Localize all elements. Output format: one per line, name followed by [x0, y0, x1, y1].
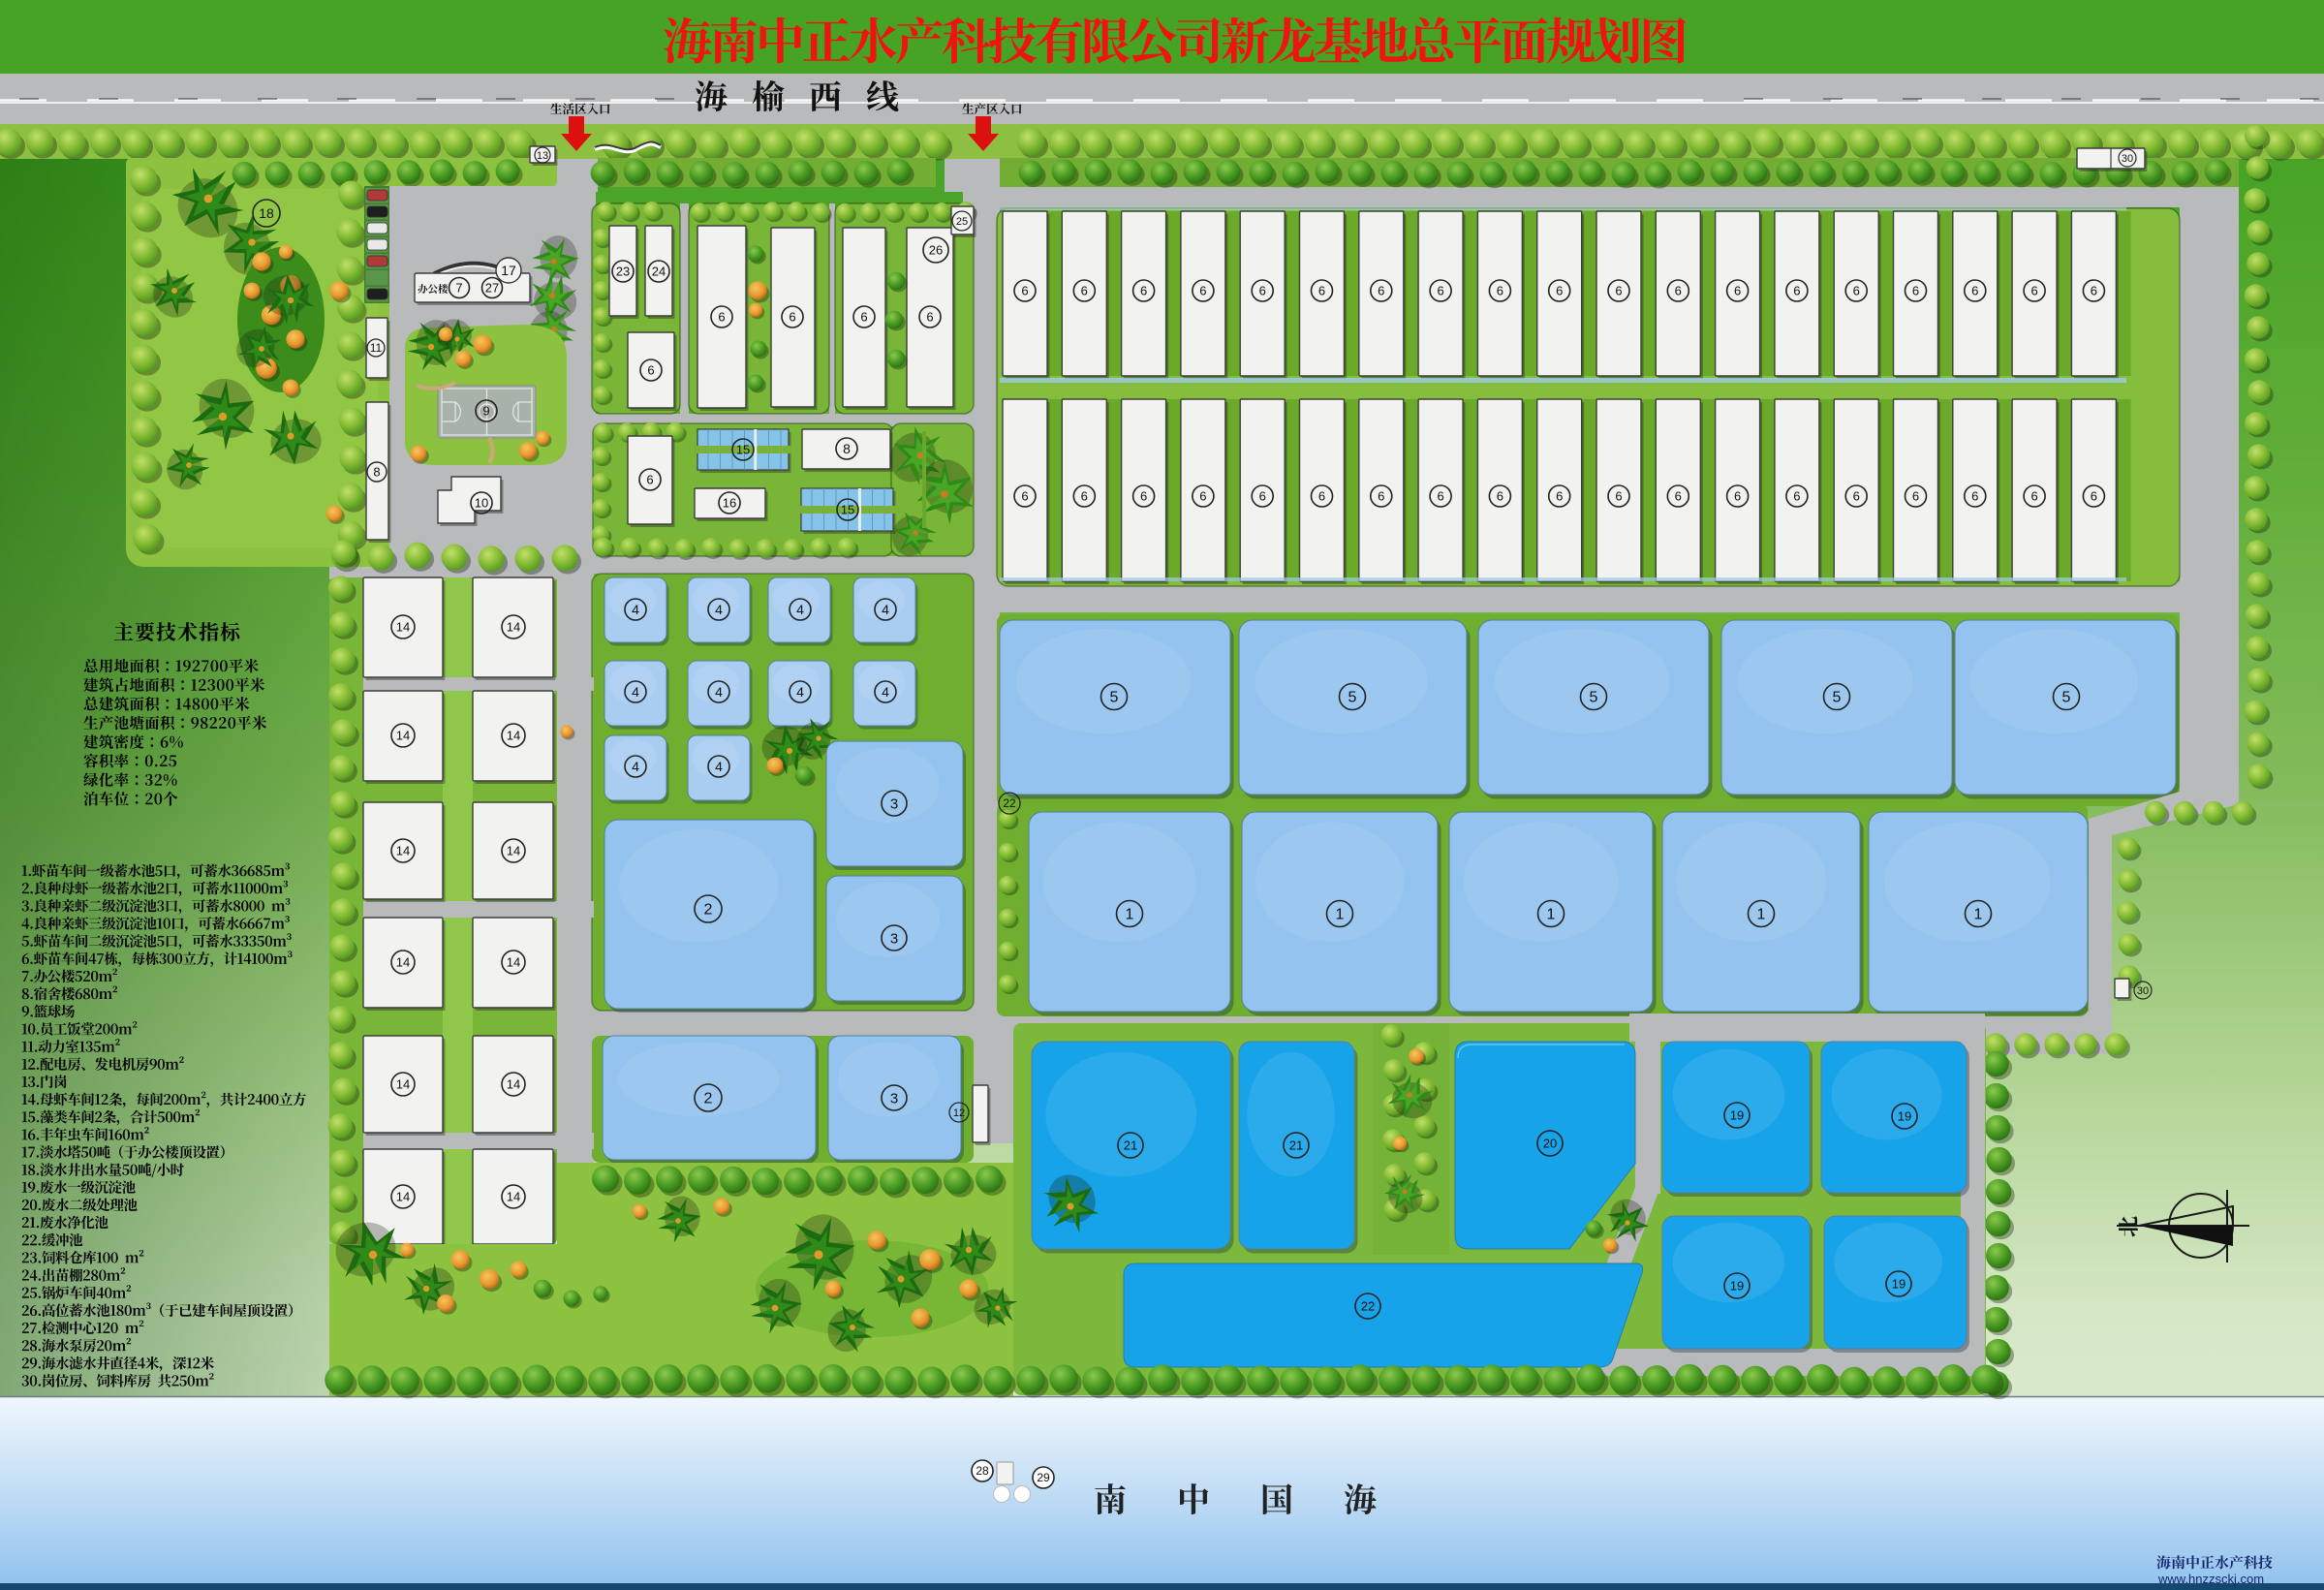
- svg-text:5: 5: [2062, 690, 2071, 706]
- svg-text:6: 6: [2091, 284, 2097, 298]
- svg-text:19: 19: [1892, 1277, 1906, 1292]
- svg-text:21: 21: [1124, 1138, 1137, 1153]
- svg-text:6: 6: [1021, 489, 1028, 504]
- svg-text:6: 6: [2030, 489, 2037, 504]
- svg-text:6: 6: [1199, 489, 1206, 504]
- svg-text:5: 5: [1833, 690, 1842, 706]
- svg-text:18: 18: [259, 205, 274, 221]
- svg-text:4: 4: [796, 684, 804, 700]
- svg-text:6: 6: [718, 310, 725, 325]
- svg-text:2: 2: [704, 1091, 713, 1107]
- svg-text:12: 12: [953, 1107, 965, 1119]
- svg-text:16: 16: [723, 496, 736, 511]
- svg-text:14: 14: [507, 1190, 520, 1204]
- svg-text:24: 24: [652, 265, 666, 279]
- svg-text:6: 6: [1556, 284, 1563, 298]
- svg-text:13: 13: [537, 150, 548, 162]
- svg-text:5: 5: [1348, 690, 1357, 706]
- svg-text:15: 15: [841, 503, 854, 517]
- svg-text:14: 14: [396, 1190, 410, 1204]
- svg-text:6: 6: [1259, 284, 1266, 298]
- svg-text:17: 17: [501, 263, 516, 278]
- svg-text:6: 6: [1556, 489, 1563, 504]
- svg-text:14: 14: [396, 955, 410, 970]
- svg-text:14: 14: [396, 729, 410, 743]
- svg-text:6: 6: [1318, 489, 1325, 504]
- svg-text:6: 6: [1497, 489, 1503, 504]
- svg-text:4: 4: [715, 684, 723, 700]
- svg-text:19: 19: [1730, 1279, 1744, 1294]
- svg-text:4: 4: [882, 684, 889, 700]
- svg-text:1: 1: [1336, 907, 1345, 923]
- svg-text:6: 6: [860, 310, 867, 325]
- svg-text:3: 3: [890, 795, 898, 812]
- svg-text:30: 30: [2122, 153, 2133, 165]
- svg-text:6: 6: [1734, 284, 1741, 298]
- svg-text:25: 25: [956, 216, 968, 228]
- svg-text:4: 4: [715, 602, 723, 617]
- svg-text:14: 14: [396, 844, 410, 858]
- svg-text:14: 14: [507, 1077, 520, 1092]
- svg-text:3: 3: [890, 1090, 898, 1107]
- svg-text:2: 2: [704, 902, 713, 919]
- svg-text:6: 6: [926, 310, 933, 325]
- svg-text:26: 26: [929, 243, 943, 258]
- svg-text:6: 6: [1318, 284, 1325, 298]
- svg-text:6: 6: [2030, 284, 2037, 298]
- svg-text:28: 28: [976, 1464, 989, 1478]
- svg-text:6: 6: [789, 310, 795, 325]
- svg-text:1: 1: [1757, 907, 1766, 923]
- svg-text:22: 22: [1361, 1299, 1375, 1314]
- svg-text:6: 6: [1081, 284, 1088, 298]
- svg-text:27: 27: [485, 281, 499, 296]
- svg-text:10: 10: [475, 496, 488, 511]
- svg-text:5: 5: [1590, 690, 1598, 706]
- svg-text:1: 1: [1547, 907, 1556, 923]
- svg-text:14: 14: [507, 844, 520, 858]
- svg-text:6: 6: [1497, 284, 1503, 298]
- svg-text:14: 14: [507, 620, 520, 635]
- svg-text:6: 6: [1199, 284, 1206, 298]
- svg-text:6: 6: [1140, 489, 1147, 504]
- svg-text:4: 4: [632, 602, 639, 617]
- svg-text:6: 6: [1437, 284, 1443, 298]
- svg-text:4: 4: [715, 759, 723, 774]
- svg-text:20: 20: [1543, 1137, 1557, 1151]
- svg-text:6: 6: [1912, 284, 1919, 298]
- svg-text:6: 6: [1912, 489, 1919, 504]
- svg-text:30: 30: [2137, 985, 2149, 997]
- svg-text:14: 14: [396, 1077, 410, 1092]
- svg-text:29: 29: [1037, 1471, 1050, 1484]
- svg-text:www.hnzzsckj.com: www.hnzzsckj.com: [2157, 1572, 2264, 1586]
- svg-text:4: 4: [632, 684, 639, 700]
- svg-text:6: 6: [1853, 284, 1860, 298]
- svg-text:6: 6: [1021, 284, 1028, 298]
- svg-text:6: 6: [1615, 284, 1622, 298]
- svg-text:4: 4: [882, 602, 889, 617]
- svg-text:19: 19: [1898, 1109, 1911, 1124]
- svg-text:6: 6: [1853, 489, 1860, 504]
- svg-text:7: 7: [455, 281, 462, 296]
- svg-text:15: 15: [736, 443, 750, 457]
- svg-text:6: 6: [647, 363, 654, 378]
- svg-text:3: 3: [890, 930, 898, 947]
- svg-text:6: 6: [2091, 489, 2097, 504]
- svg-text:6: 6: [1081, 489, 1088, 504]
- svg-text:6: 6: [1675, 489, 1682, 504]
- svg-text:11: 11: [370, 341, 383, 355]
- svg-text:6: 6: [1971, 489, 1978, 504]
- svg-text:6: 6: [1793, 284, 1800, 298]
- svg-text:6: 6: [1734, 489, 1741, 504]
- svg-text:14: 14: [507, 955, 520, 970]
- svg-text:6: 6: [1675, 284, 1682, 298]
- svg-text:14: 14: [507, 729, 520, 743]
- svg-text:6: 6: [1378, 489, 1384, 504]
- svg-text:21: 21: [1289, 1138, 1303, 1153]
- svg-text:6: 6: [646, 473, 653, 487]
- svg-text:5: 5: [1110, 690, 1119, 706]
- svg-text:6: 6: [1140, 284, 1147, 298]
- svg-text:4: 4: [632, 759, 639, 774]
- svg-text:6: 6: [1615, 489, 1622, 504]
- svg-text:4: 4: [796, 602, 804, 617]
- svg-text:6: 6: [1259, 489, 1266, 504]
- svg-text:22: 22: [1003, 796, 1016, 810]
- svg-text:1: 1: [1126, 907, 1134, 923]
- svg-text:6: 6: [1793, 489, 1800, 504]
- svg-text:14: 14: [396, 620, 410, 635]
- svg-text:23: 23: [616, 265, 630, 279]
- svg-text:6: 6: [1378, 284, 1384, 298]
- svg-text:1: 1: [1974, 907, 1983, 923]
- svg-text:6: 6: [1437, 489, 1443, 504]
- svg-text:9: 9: [482, 404, 489, 419]
- svg-text:8: 8: [843, 441, 851, 456]
- svg-text:6: 6: [1971, 284, 1978, 298]
- svg-text:19: 19: [1730, 1108, 1744, 1123]
- svg-text:8: 8: [373, 465, 380, 480]
